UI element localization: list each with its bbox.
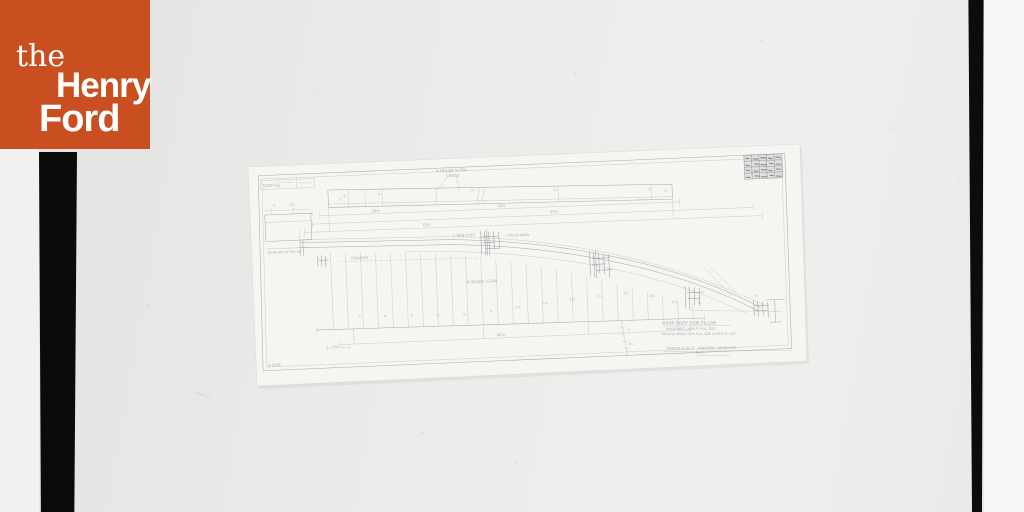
stamp-scribble [754, 164, 759, 165]
stamp-scribble [768, 170, 772, 171]
drawing-annotation: ⅝ [358, 315, 361, 319]
drawing-annotation: 2⅝ [672, 300, 677, 304]
drawing-annotation: STRAIGHT [351, 256, 370, 261]
stamp-scribble [746, 177, 750, 178]
drawing-annotation: 1⅞ [596, 294, 601, 298]
stamp-scribble [753, 171, 758, 172]
drawing-annotation: 2 [628, 328, 630, 332]
drawing-annotation: SCALE FULL [263, 183, 281, 188]
stamp-scribble [760, 157, 766, 158]
archival-photo-viewer: the Henry Ford [0, 0, 1024, 512]
stamp-scribble [761, 176, 767, 177]
stamp-scribble [755, 176, 760, 177]
stamp-scribble [761, 169, 767, 170]
stamp-scribble [745, 158, 749, 159]
drawing-annotation: 48⅞ [497, 333, 506, 337]
drawing-annotation: ⅝ [410, 314, 413, 318]
drawing-annotation: 1⅝ [628, 342, 633, 346]
stamp-scribble [776, 169, 781, 170]
drawing-annotation: 1⅜ [543, 301, 548, 305]
drawing-annotation: 1¼ [289, 203, 294, 207]
backdrop-pencil-smudge [194, 393, 210, 398]
stamp-scribble [753, 159, 758, 160]
stamp-scribble [761, 164, 767, 165]
drawing-annotation: ⅝ [272, 204, 275, 208]
drawing-annotation: MUST BE MADE FROM FULL SIZE LAYOUT AT LO… [662, 332, 737, 336]
drawing-annotation: № 21 [696, 350, 704, 354]
drawing-annotation: 2⅜ [649, 294, 654, 298]
drawing-annotation: ⅞ [310, 212, 313, 216]
drawing-annotation: 41⅝ [498, 204, 507, 208]
drawing-annotation: ⅝ [463, 313, 466, 317]
drawing-annotation: 2 REQD [445, 174, 459, 179]
drawing-annotation: A-1018 [268, 363, 282, 368]
stamp-scribble [746, 170, 750, 171]
drawing-annotation: 1⅝ [569, 297, 574, 301]
drawing-annotation: ¾ [384, 314, 387, 318]
drawing-annotation: 62⅞ [550, 210, 559, 214]
drawing-annotation: WOOD PART LAYOUT FULL SIZE [666, 327, 716, 331]
stamp-scribble [775, 157, 780, 158]
stamp-scribble [746, 165, 750, 166]
drawing-annotation: 29⅜ [372, 209, 381, 213]
stamp-scribble [768, 158, 772, 159]
drawing-annotation: ⅝ [754, 294, 757, 298]
stamp-scribble [776, 164, 781, 165]
drawing-annotation: 1⅝ [332, 344, 337, 348]
drawing-annotation: 1⅛ [516, 305, 521, 309]
drawing-annotation: ¾ [490, 309, 493, 313]
revision-stamp [744, 154, 783, 180]
stamp-scribble [776, 176, 781, 177]
stamp-scribble [769, 163, 773, 164]
drawing-annotation: REAR BODY SIDE PILLAR [663, 320, 717, 326]
drawing-annotation: ⅞ [436, 313, 439, 317]
drawing-annotation: ⅞ [698, 301, 701, 305]
drawing-annotation: 75¼ [422, 223, 431, 227]
drawing-annotation: 2⅛ [623, 291, 628, 295]
blueprint-photo: 4 HOLES ⅜ DIA2 REQDSCALE FULL⅜⅝¾⅝⅞29⅜41⅝… [0, 0, 1024, 512]
stamp-scribble [770, 175, 774, 176]
